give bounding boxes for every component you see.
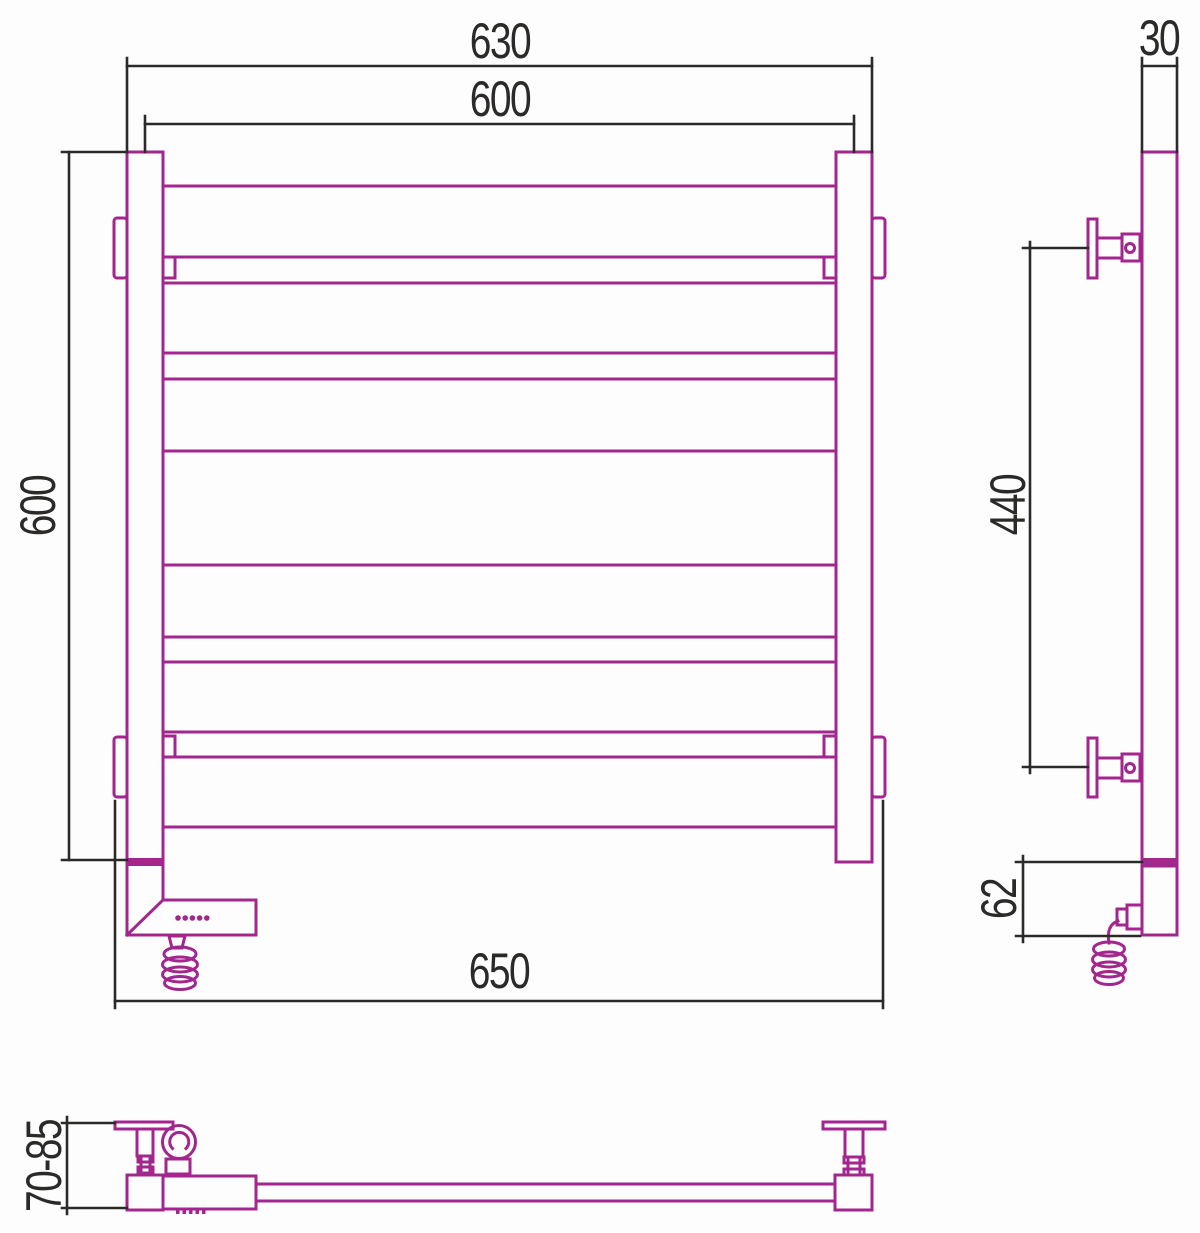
housing-chamfer (127, 900, 163, 935)
front-view (62, 58, 885, 1008)
wall-bracket (114, 218, 127, 278)
rung-end-block (163, 257, 175, 278)
dim-30 (1142, 58, 1177, 152)
bracket-stem (1097, 758, 1122, 778)
indicator-dots (175, 915, 209, 921)
towel-rail-technical-drawing: 630 600 600 650 30 440 62 70-85 (0, 0, 1200, 1233)
bracket-stem (1097, 238, 1122, 258)
dim-label-bracket-span: 650 (469, 942, 529, 1000)
side-wall-bracket-upper (1088, 219, 1140, 278)
dim-label-wall-clearance: 70-85 (15, 1120, 73, 1212)
side-power-cord (1093, 905, 1143, 985)
bracket-screw (1126, 244, 1135, 253)
front-heater-junction-band (126, 858, 165, 866)
heater-housing-plan (163, 1176, 256, 1209)
rung-end-block (163, 736, 175, 757)
cord-plug-tip (1117, 909, 1127, 925)
side-wall-bracket-lower (1088, 738, 1140, 797)
dim-600-left (62, 152, 127, 860)
rung-end-block (824, 736, 836, 757)
cord-plug (1127, 905, 1142, 929)
bracket-stem (845, 1129, 863, 1157)
front-right-post (836, 152, 872, 862)
wall-bracket (872, 737, 885, 797)
dim-label-outer-width: 630 (470, 12, 530, 70)
cord-coil-inner (170, 1132, 189, 1148)
plan-right-mount (823, 1122, 885, 1210)
wall-bracket (114, 737, 127, 797)
side-heater-housing (1142, 866, 1177, 935)
heating-element-housing (127, 866, 256, 935)
cord-coil-end (163, 1126, 196, 1159)
power-cord-coil (163, 936, 198, 990)
dim-label-axis-width: 600 (470, 70, 530, 128)
plan-left-mount (115, 1122, 256, 1214)
plan-view (62, 1117, 885, 1214)
bracket-screw (1126, 764, 1135, 773)
dim-label-post-depth: 30 (1139, 9, 1179, 67)
front-left-post (127, 152, 163, 862)
post-section (835, 1175, 872, 1210)
post-section (127, 1175, 163, 1210)
dim-label-height: 600 (9, 476, 67, 536)
cord-plug-plan (166, 1159, 190, 1174)
dim-label-heater-height: 62 (970, 879, 1028, 919)
side-view (1016, 58, 1179, 985)
bracket-stem (137, 1129, 153, 1156)
rung-end-block (824, 257, 836, 278)
drawing-linework (0, 0, 1200, 1233)
dim-label-bracket-spacing: 440 (979, 475, 1037, 535)
bracket-neck (848, 1157, 860, 1175)
dim-62 (1016, 856, 1142, 942)
wall-bracket (872, 218, 885, 278)
side-post (1142, 152, 1177, 862)
